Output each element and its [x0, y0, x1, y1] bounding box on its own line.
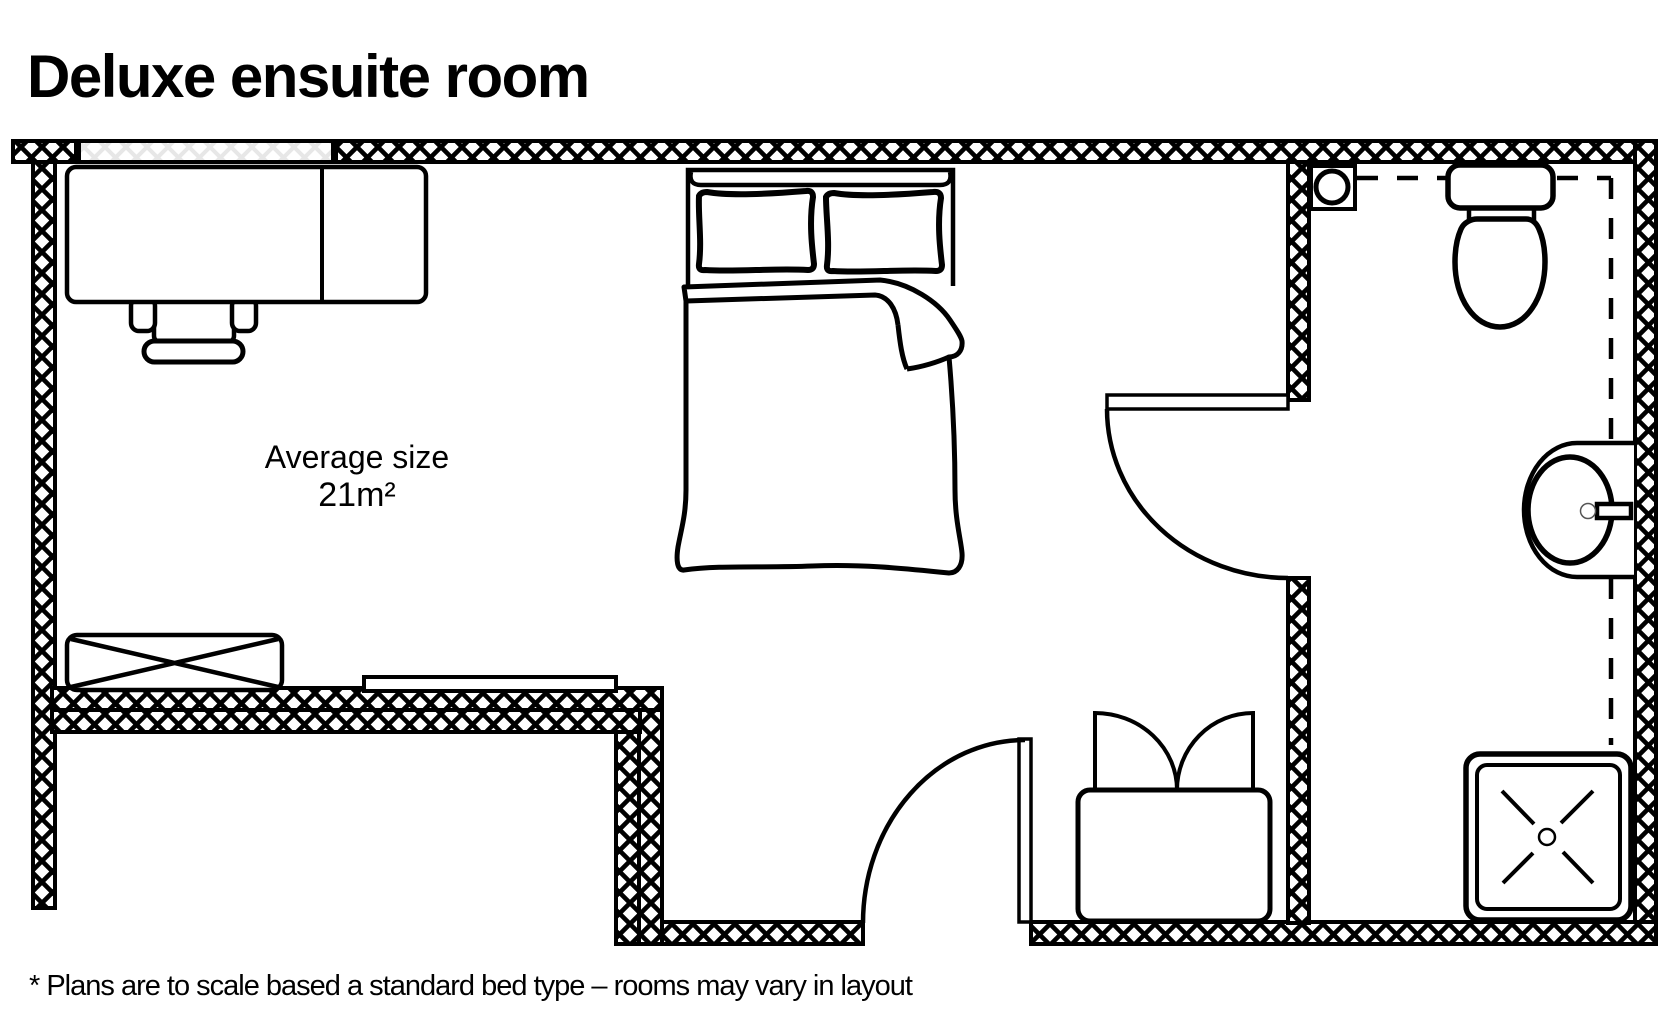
svg-text:Average size: Average size [265, 439, 449, 475]
svg-text:Deluxe ensuite room: Deluxe ensuite room [27, 43, 589, 110]
svg-text:21m²: 21m² [318, 476, 395, 514]
svg-text:* Plans are to scale based a s: * Plans are to scale based a standard be… [29, 970, 913, 1002]
